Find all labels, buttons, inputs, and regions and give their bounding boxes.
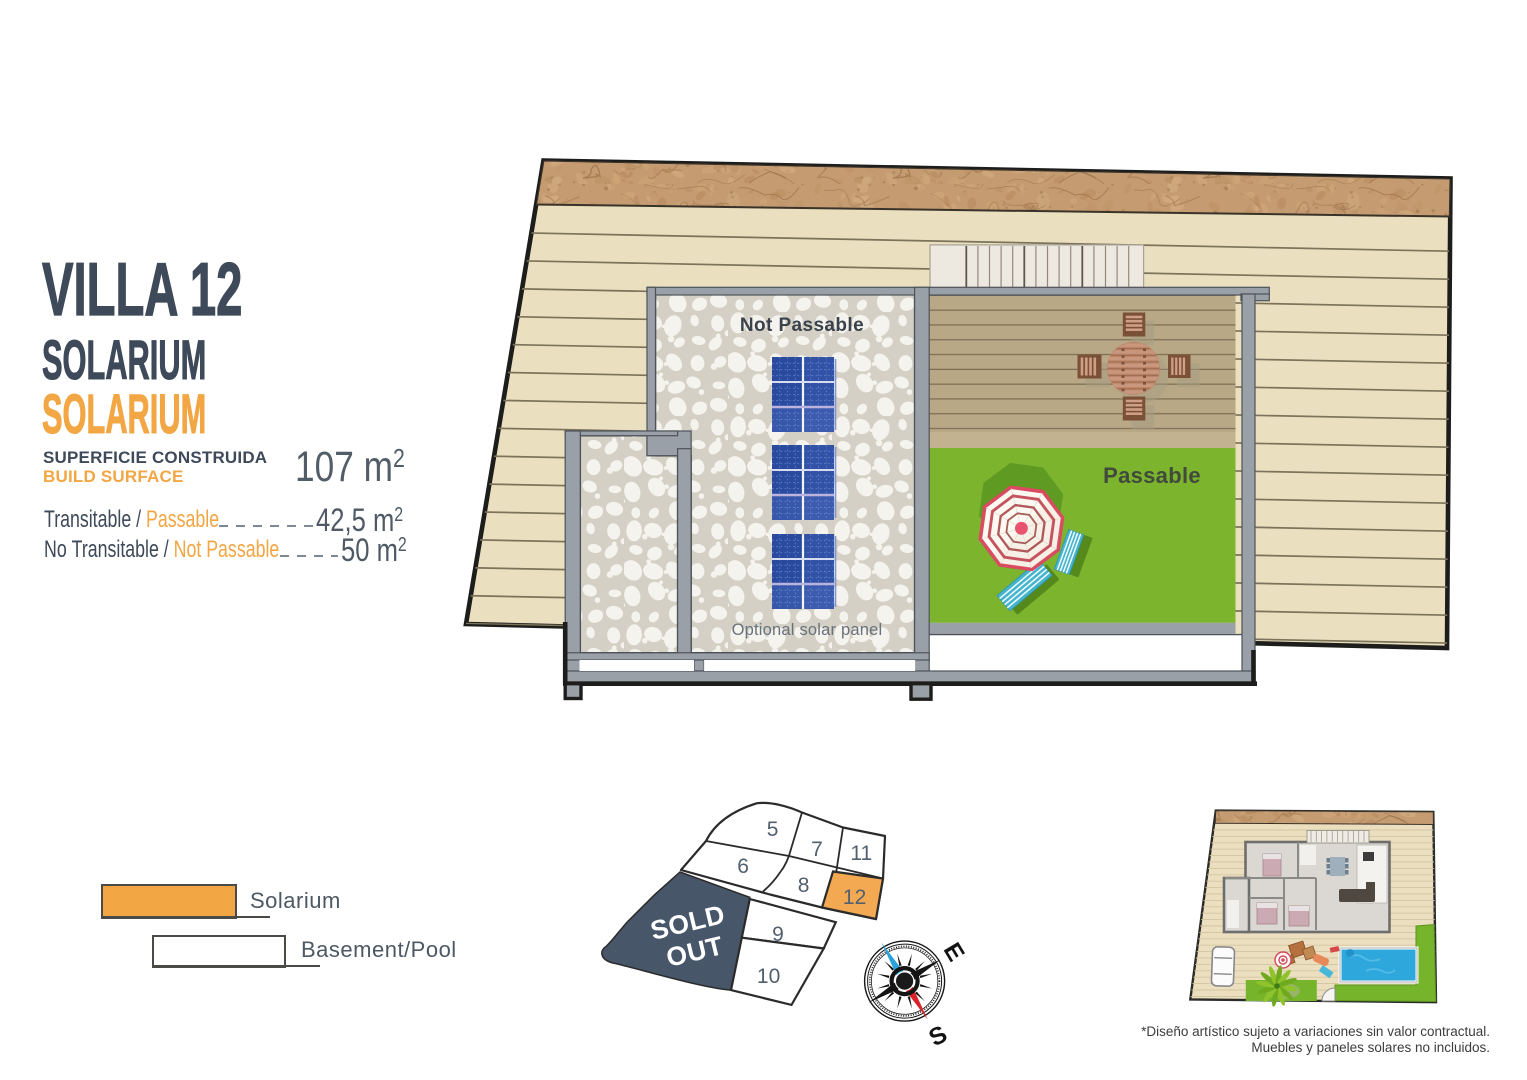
svg-text:S: S — [925, 1021, 952, 1053]
svg-text:Passable: Passable — [1103, 463, 1201, 488]
svg-text:9: 9 — [772, 923, 784, 946]
svg-text:6: 6 — [737, 855, 749, 878]
svg-text:10: 10 — [757, 965, 780, 988]
svg-text:Not Passable: Not Passable — [740, 315, 864, 336]
svg-text:5: 5 — [767, 818, 779, 841]
svg-text:E: E — [938, 938, 970, 966]
svg-text:Optional solar panel: Optional solar panel — [732, 621, 883, 639]
svg-text:7: 7 — [811, 838, 823, 861]
svg-text:8: 8 — [798, 874, 810, 897]
svg-text:11: 11 — [850, 842, 872, 865]
svg-text:12: 12 — [843, 886, 866, 909]
